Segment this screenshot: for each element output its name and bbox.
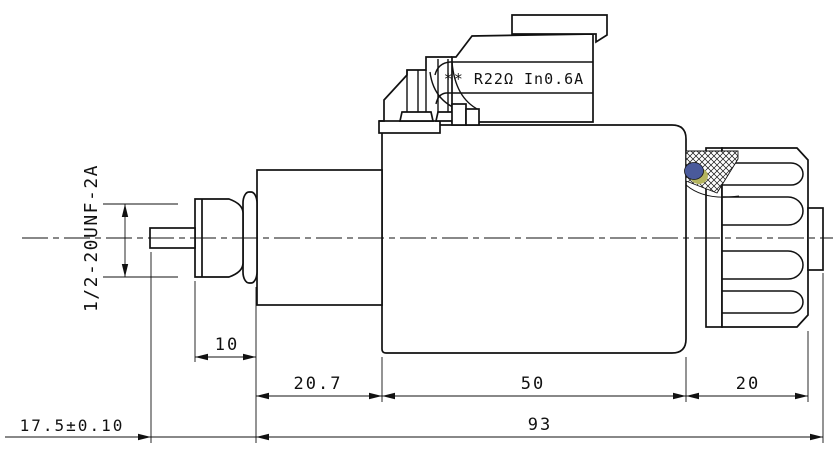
- dim-arrow: [795, 393, 808, 399]
- dim-text-overall-length: 93: [528, 415, 552, 435]
- bracket-foot-plate: [379, 121, 440, 133]
- oring-seal-blue: [685, 163, 704, 180]
- connector-bushing-outer: [452, 104, 466, 125]
- bracket-pad-left: [400, 112, 433, 121]
- dim-arrow: [243, 354, 256, 360]
- dim-arrow: [673, 393, 686, 399]
- dim-text-coil-length: 50: [521, 374, 545, 394]
- dim-arrow: [369, 393, 382, 399]
- dim-arrow: [195, 354, 208, 360]
- coil-spec-label: ** R22Ω In0.6A: [444, 70, 584, 88]
- dim-text-pin-protrusion: 17.5±0.10: [20, 416, 125, 435]
- dim-arrow: [382, 393, 395, 399]
- dim-arrow: [256, 434, 269, 440]
- center-boss: [808, 208, 823, 270]
- dim-arrow: [810, 434, 823, 440]
- dim-text-tube-length: 20.7: [294, 374, 343, 394]
- dim-arrow: [122, 204, 128, 217]
- connector-bushing-inner: [466, 109, 479, 125]
- dim-text-nut-length: 10: [215, 335, 239, 355]
- bracket-column-lines: [407, 59, 448, 112]
- dim-arrow: [686, 393, 699, 399]
- thread-spec-label: 1/2-20UNF-2A: [81, 164, 102, 312]
- dim-text-knob-length: 20: [736, 374, 760, 394]
- solenoid-coil-technical-drawing: ** R22Ω In0.6A 1/2-20UNF-2A 10 20.7 50 2…: [0, 0, 835, 453]
- coil-body: [382, 125, 686, 353]
- dim-arrow: [138, 434, 151, 440]
- dim-arrow: [256, 393, 269, 399]
- drawing-canvas: ** R22Ω In0.6A 1/2-20UNF-2A 10 20.7 50 2…: [0, 0, 835, 453]
- dim-arrow: [122, 264, 128, 277]
